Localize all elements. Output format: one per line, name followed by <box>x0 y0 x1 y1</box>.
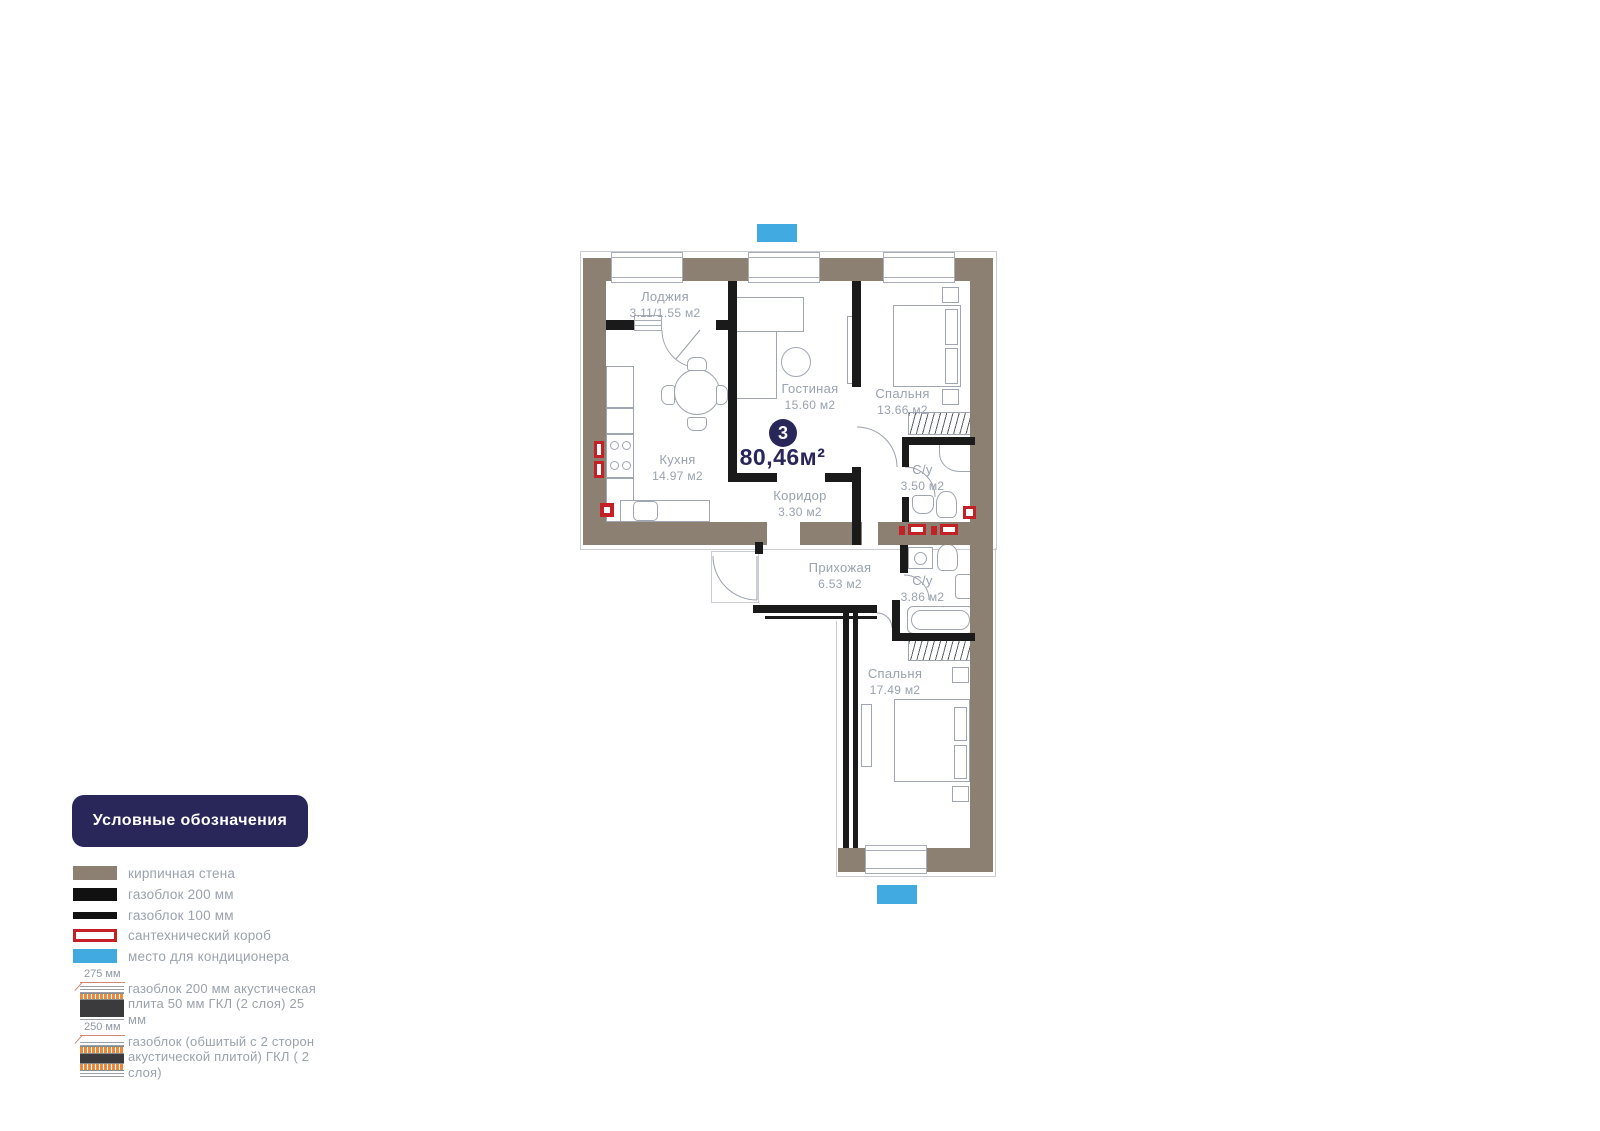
layer-acoustic <box>80 1046 124 1054</box>
legend-item-block200: газоблок 200 мм <box>73 885 234 903</box>
legend-swatch-ac <box>73 949 117 963</box>
wall-block-entrance-jamb <box>755 542 763 554</box>
legend-label: кирпичная стена <box>128 866 235 881</box>
room-label-bath2: С/у 3.86 м2 <box>895 573 950 605</box>
chair <box>687 357 707 371</box>
room-label-kitchen: Кухня 14.97 м2 <box>640 452 715 484</box>
pillow <box>945 348 958 384</box>
nightstand <box>952 667 969 683</box>
legend-label-acoustic250: газоблок (обшитый с 2 сторон акустическо… <box>128 1034 328 1080</box>
legend-label-acoustic275: газоблок 200 мм акустическая плита 50 мм… <box>128 981 323 1027</box>
layer-acoustic <box>80 1063 124 1071</box>
toilet-bath1 <box>936 491 957 518</box>
dining-table <box>674 369 720 415</box>
room-area: 3.86 м2 <box>901 590 945 604</box>
plumbing-box-divider-b <box>908 524 926 535</box>
layer-gasblock <box>80 1054 124 1063</box>
room-name: Коридор <box>773 488 826 503</box>
legend-swatch-plumbing <box>73 929 117 942</box>
legend-swatch-acoustic275 <box>80 986 124 1020</box>
room-name: Спальня <box>868 666 922 681</box>
layer-acoustic <box>80 993 124 1000</box>
pillow <box>954 707 967 741</box>
stove <box>606 434 634 478</box>
nightstand <box>942 389 959 405</box>
legend-swatch-acoustic250 <box>80 1040 124 1077</box>
plumbing-box-kitchen-corner <box>600 503 614 517</box>
plumbing-box-bath1-corner <box>963 506 976 519</box>
stove-burner <box>610 441 619 450</box>
room-name: Гостиная <box>782 381 839 396</box>
room-name: С/у <box>912 573 932 588</box>
coffee-table <box>781 347 811 377</box>
legend-dim-250: 250 мм <box>80 1021 125 1036</box>
wall-block-living-bottom-left <box>728 473 777 482</box>
wall-block-living-bedroom1-a <box>852 281 861 387</box>
wall-block-hall-vertical-outer <box>843 613 849 848</box>
wall-block-bath1-left-b <box>902 497 909 522</box>
plumbing-box-left-a <box>594 441 604 458</box>
wall-brick-kitchen-bottom <box>583 522 767 545</box>
fridge <box>606 366 634 408</box>
room-label-bedroom1: Спальня 13.66 м2 <box>865 386 940 418</box>
room-area: 6.53 м2 <box>818 577 862 591</box>
apartment-number-badge: 3 <box>769 419 797 447</box>
bathtub <box>907 606 974 634</box>
stove-burner <box>622 461 631 470</box>
room-name: Прихожая <box>809 560 872 575</box>
wall-block-bath2-bottom <box>892 633 975 641</box>
layer-gkl <box>80 986 124 993</box>
layer-gkl <box>80 1017 124 1020</box>
washing-machine <box>908 547 933 569</box>
legend-item-block100: газоблок 100 мм <box>73 907 234 923</box>
plumbing-box-divider-a <box>899 526 905 535</box>
wall-block-hall-vertical-inner <box>853 613 858 848</box>
bedroom2-door-arc <box>877 613 892 628</box>
chair <box>661 385 675 405</box>
loggia-door-leaf <box>676 330 700 359</box>
room-area: 3.11/1.55 м2 <box>629 306 700 320</box>
room-name: Спальня <box>875 386 929 401</box>
legend-swatch-block200 <box>73 888 117 901</box>
chair <box>716 385 728 405</box>
nightstand <box>952 786 969 802</box>
plumbing-box-divider-c <box>931 526 937 535</box>
kitchen-sink <box>633 501 658 521</box>
wardrobe-bedroom2 <box>908 640 974 661</box>
legend-swatch-block100 <box>73 912 117 919</box>
legend-title: Условные обозначения <box>72 795 308 847</box>
window-loggia <box>611 252 683 283</box>
stove-burner <box>610 461 619 470</box>
room-name: Кухня <box>659 452 695 467</box>
legend-label: место для кондиционера <box>128 949 289 964</box>
window-living <box>748 252 820 283</box>
legend-item-ac: место для кондиционера <box>73 947 289 965</box>
room-label-corridor: Коридор 3.30 м2 <box>760 488 840 520</box>
total-area: 80,46м² <box>725 444 840 471</box>
tv-unit-bedroom2 <box>861 704 872 767</box>
layer-gasblock <box>80 1000 124 1017</box>
pillow <box>954 745 967 779</box>
window-bedroom1 <box>883 252 955 283</box>
room-label-bath1: С/у 3.50 м2 <box>895 462 950 494</box>
kitchen-counter-upper <box>606 408 634 434</box>
nightstand <box>942 287 959 303</box>
legend-item-plumbing: сантехнический короб <box>73 926 271 944</box>
floorplan-page: Лоджия 3.11/1.55 м2 Кухня 14.97 м2 Гости… <box>0 0 1600 1131</box>
pillow <box>945 309 958 345</box>
room-name: С/у <box>912 462 932 477</box>
room-area: 3.30 м2 <box>778 505 822 519</box>
wall-block-living-bottom-right <box>825 473 861 482</box>
wall-block-bath1-top <box>902 437 975 445</box>
room-label-loggia: Лоджия 3.11/1.55 м2 <box>625 289 705 321</box>
room-label-bedroom2: Спальня 17.49 м2 <box>855 666 935 698</box>
entrance-door-arc <box>713 556 757 600</box>
room-area: 15.60 м2 <box>785 398 836 412</box>
room-label-hall: Прихожая 6.53 м2 <box>795 560 885 592</box>
legend-item-brick: кирпичная стена <box>73 864 235 882</box>
chair <box>687 417 707 431</box>
wall-block-loggia-bottom-b <box>716 320 737 330</box>
layer-gkl <box>80 1071 124 1077</box>
legend-label: газоблок 100 мм <box>128 908 234 923</box>
sofa-horizontal <box>736 297 804 332</box>
wall-brick-right <box>970 281 993 848</box>
washing-machine-drum <box>914 552 927 565</box>
plumbing-box-left-b <box>594 461 604 478</box>
legend-swatch-brick <box>73 866 117 880</box>
room-area: 14.97 м2 <box>652 469 703 483</box>
legend-label: сантехнический короб <box>128 928 271 943</box>
legend-label: газоблок 200 мм <box>128 887 234 902</box>
room-area: 17.49 м2 <box>870 683 921 697</box>
washbasin-bath1 <box>912 495 934 514</box>
stove-burner <box>622 441 631 450</box>
room-label-living: Гостиная 15.60 м2 <box>770 381 850 413</box>
wall-block-loggia-bottom-a <box>606 320 636 330</box>
toilet-bath2 <box>937 544 958 571</box>
plumbing-box-divider-d <box>940 524 958 535</box>
wall-block-hall-horizontal <box>753 605 877 613</box>
wall-block-hall-horizontal-inner <box>765 616 877 619</box>
room-area: 13.66 м2 <box>877 403 928 417</box>
room-name: Лоджия <box>641 289 689 304</box>
legend-dim-275: 275 мм <box>80 968 125 983</box>
wall-block-bath2-left <box>900 545 908 573</box>
window-bedroom2 <box>865 845 927 874</box>
room-area: 3.50 м2 <box>901 479 945 493</box>
bedroom1-door-arc <box>857 427 897 467</box>
